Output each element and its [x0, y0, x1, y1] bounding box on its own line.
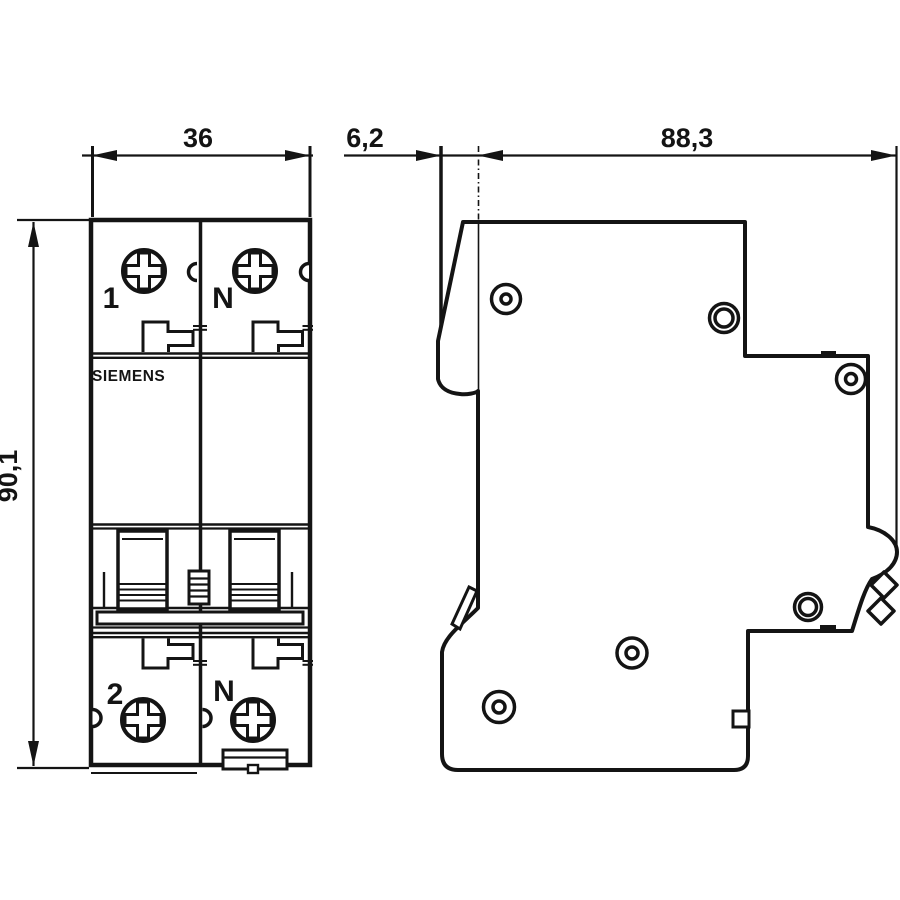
pole-1-label: 1: [103, 282, 120, 315]
arrow-right-icon: [285, 150, 310, 161]
pin-circle: [710, 304, 739, 333]
dimension-width-36: [82, 146, 313, 217]
terminal-screw-bottom-left: [122, 699, 164, 741]
pole-2-label: 2: [107, 678, 124, 711]
edge-tab-top: [821, 351, 836, 356]
dim-nose-depth-label: 6,2: [346, 123, 384, 153]
arrow-left-icon: [478, 150, 503, 161]
terminal-screw-top-left: [123, 250, 165, 292]
dim-total-depth-label: 88,3: [661, 123, 714, 153]
toggle-handle-left: [118, 531, 167, 609]
pin-circle: [795, 594, 822, 621]
terminal-screw-bottom-right: [232, 699, 274, 741]
front-view: SIEMENS 1 N 2 N: [91, 220, 313, 773]
brand-label: SIEMENS: [92, 368, 165, 385]
pin-circle: [837, 365, 866, 394]
handle-linkage: [189, 571, 209, 604]
dim-height-label: 90,1: [0, 450, 23, 503]
handle-tie-bar: [97, 612, 303, 624]
pin-circle: [484, 692, 515, 723]
edge-notch: [733, 711, 749, 727]
arrow-right-icon: [871, 150, 896, 161]
terminal-screw-top-right: [234, 250, 276, 292]
arrow-right-icon: [416, 150, 441, 161]
technical-drawing-page: 36 90,1 6,2 88,3: [0, 0, 900, 900]
dim-width-label: 36: [183, 123, 213, 153]
pole-n-bottom-label: N: [213, 675, 235, 708]
neutral-terminal-box: [223, 750, 287, 773]
arrow-up-icon: [28, 222, 39, 247]
pin-circle: [492, 285, 521, 314]
mcb-dimension-drawing: 36 90,1 6,2 88,3: [0, 0, 900, 900]
pin-circle: [617, 638, 647, 668]
arrow-left-icon: [92, 150, 117, 161]
pole-n-top-label: N: [212, 282, 234, 315]
toggle-handle-right: [230, 531, 279, 609]
edge-tab-bottom: [820, 625, 836, 631]
side-view: [438, 222, 897, 770]
arrow-down-icon: [28, 741, 39, 766]
